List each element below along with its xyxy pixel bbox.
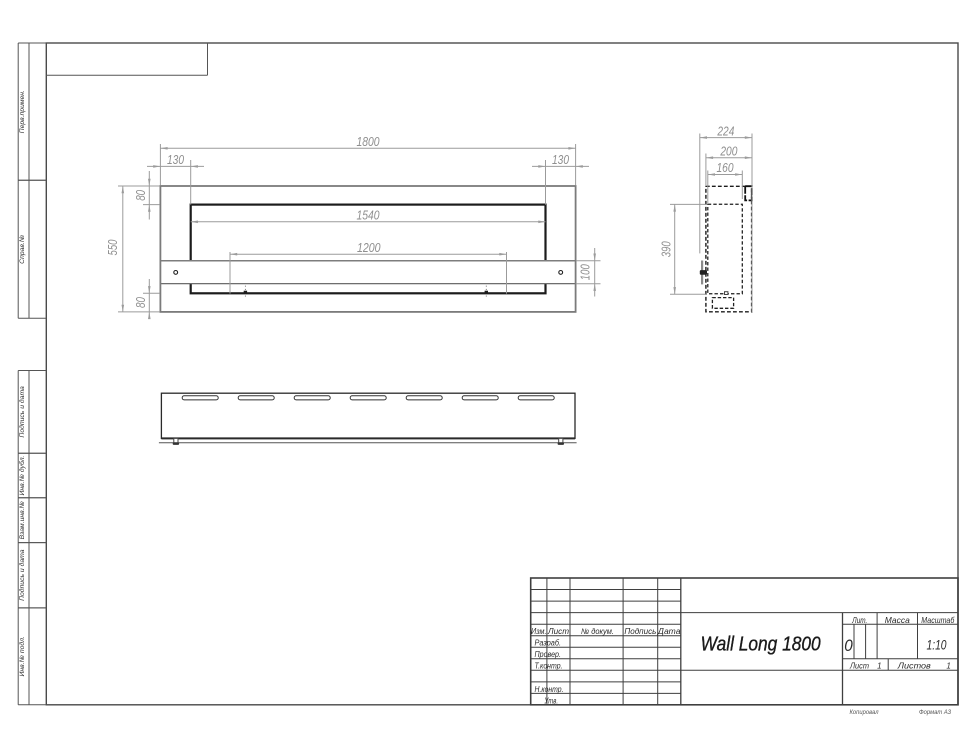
svg-text:Перв.примен.: Перв.примен.: [19, 90, 26, 133]
svg-text:550: 550: [105, 239, 120, 256]
svg-text:130: 130: [552, 152, 570, 167]
svg-text:Утв.: Утв.: [544, 696, 558, 705]
svg-text:1800: 1800: [357, 134, 381, 149]
svg-text:Копировал: Копировал: [850, 709, 879, 716]
svg-text:Инв.№ подл.: Инв.№ подл.: [18, 636, 26, 676]
svg-text:Подпись и дата: Подпись и дата: [18, 549, 26, 601]
svg-text:Дата: Дата: [657, 627, 681, 636]
svg-text:1:10: 1:10: [927, 636, 947, 652]
svg-text:№ докум.: № докум.: [581, 627, 614, 636]
svg-text:80: 80: [133, 296, 148, 308]
svg-text:Лист: Лист: [547, 627, 569, 636]
svg-text:Подпись: Подпись: [624, 627, 656, 636]
svg-text:Т.контр.: Т.контр.: [535, 662, 563, 671]
svg-text:Лит.: Лит.: [851, 616, 867, 625]
svg-text:Провер.: Провер.: [535, 650, 562, 659]
svg-text:1540: 1540: [357, 208, 381, 223]
svg-text:160: 160: [717, 160, 735, 175]
svg-text:1200: 1200: [357, 240, 381, 255]
svg-text:Wall Long 1800: Wall Long 1800: [701, 634, 821, 656]
svg-text:1: 1: [877, 662, 881, 671]
svg-text:200: 200: [720, 143, 738, 158]
svg-text:Подпись и дата: Подпись и дата: [18, 386, 26, 438]
svg-text:Масса: Масса: [885, 616, 911, 625]
svg-text:130: 130: [167, 152, 185, 167]
svg-text:224: 224: [717, 123, 735, 138]
svg-text:1: 1: [946, 662, 950, 671]
svg-text:Лист: Лист: [849, 662, 869, 671]
svg-text:Разраб.: Разраб.: [535, 639, 562, 648]
svg-text:80: 80: [133, 189, 148, 201]
svg-text:Листов: Листов: [897, 662, 931, 671]
svg-text:Инв.№ дубл.: Инв.№ дубл.: [18, 455, 26, 495]
svg-text:Взам.инв.№: Взам.инв.№: [19, 501, 26, 539]
svg-text:Изм.: Изм.: [531, 627, 547, 636]
svg-text:Масштаб: Масштаб: [921, 616, 954, 625]
svg-text:Справ.№: Справ.№: [19, 235, 26, 264]
svg-text:100: 100: [577, 264, 592, 281]
svg-text:0: 0: [844, 636, 853, 655]
svg-text:390: 390: [659, 241, 674, 258]
svg-text:Н.контр.: Н.контр.: [535, 685, 564, 694]
svg-text:Формат А3: Формат А3: [919, 709, 951, 716]
